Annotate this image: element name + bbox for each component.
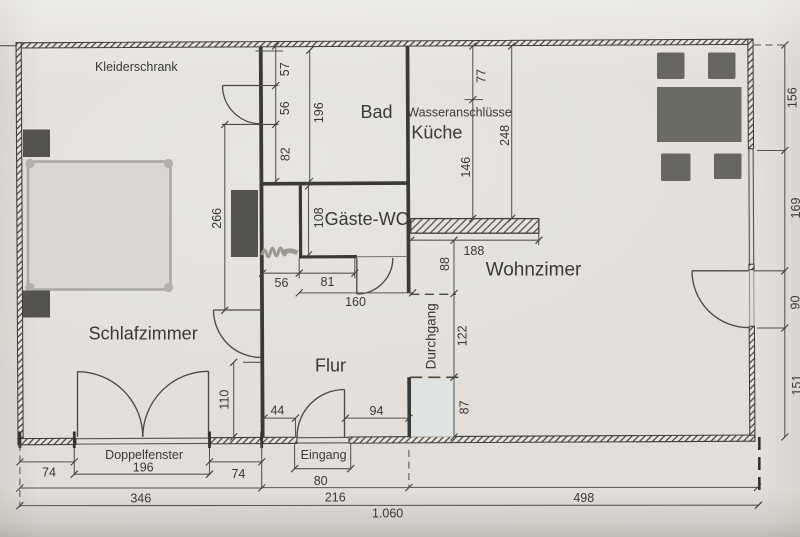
- svg-text:94: 94: [370, 404, 384, 418]
- svg-text:151: 151: [790, 375, 800, 396]
- svg-text:346: 346: [130, 492, 151, 506]
- svg-text:169: 169: [789, 198, 800, 219]
- svg-text:81: 81: [321, 275, 335, 289]
- svg-text:188: 188: [463, 244, 484, 258]
- svg-text:87: 87: [457, 400, 471, 414]
- svg-text:44: 44: [270, 404, 284, 418]
- svg-text:1.060: 1.060: [372, 506, 403, 520]
- svg-text:498: 498: [573, 491, 594, 505]
- svg-text:156: 156: [786, 87, 800, 108]
- svg-text:Kleiderschrank: Kleiderschrank: [95, 60, 178, 74]
- svg-text:74: 74: [42, 465, 56, 479]
- svg-text:122: 122: [456, 325, 470, 346]
- svg-text:196: 196: [312, 102, 326, 123]
- svg-text:Küche: Küche: [411, 123, 462, 143]
- svg-text:Schlafzimmer: Schlafzimmer: [89, 324, 198, 344]
- svg-text:146: 146: [459, 157, 473, 178]
- svg-text:Eingang: Eingang: [301, 448, 347, 462]
- svg-text:248: 248: [498, 125, 512, 146]
- svg-text:196: 196: [133, 461, 154, 475]
- svg-text:74: 74: [231, 467, 245, 481]
- svg-text:90: 90: [788, 296, 800, 310]
- svg-text:56: 56: [278, 101, 292, 115]
- svg-text:160: 160: [345, 295, 366, 309]
- svg-text:80: 80: [314, 474, 328, 488]
- svg-text:Wohnzimer: Wohnzimer: [486, 260, 582, 281]
- svg-text:Gäste-WC: Gäste-WC: [325, 209, 409, 229]
- svg-text:82: 82: [278, 147, 292, 161]
- svg-text:216: 216: [325, 491, 346, 505]
- svg-text:266: 266: [210, 208, 224, 229]
- svg-text:Flur: Flur: [315, 356, 346, 376]
- svg-text:77: 77: [475, 69, 489, 83]
- svg-text:Bad: Bad: [360, 102, 392, 122]
- svg-text:Wasseranschlüsse: Wasseranschlüsse: [407, 105, 511, 119]
- svg-text:88: 88: [438, 257, 452, 271]
- svg-text:56: 56: [275, 276, 289, 290]
- svg-text:Durchgang: Durchgang: [423, 303, 438, 369]
- svg-text:57: 57: [278, 62, 292, 76]
- svg-text:110: 110: [218, 390, 232, 410]
